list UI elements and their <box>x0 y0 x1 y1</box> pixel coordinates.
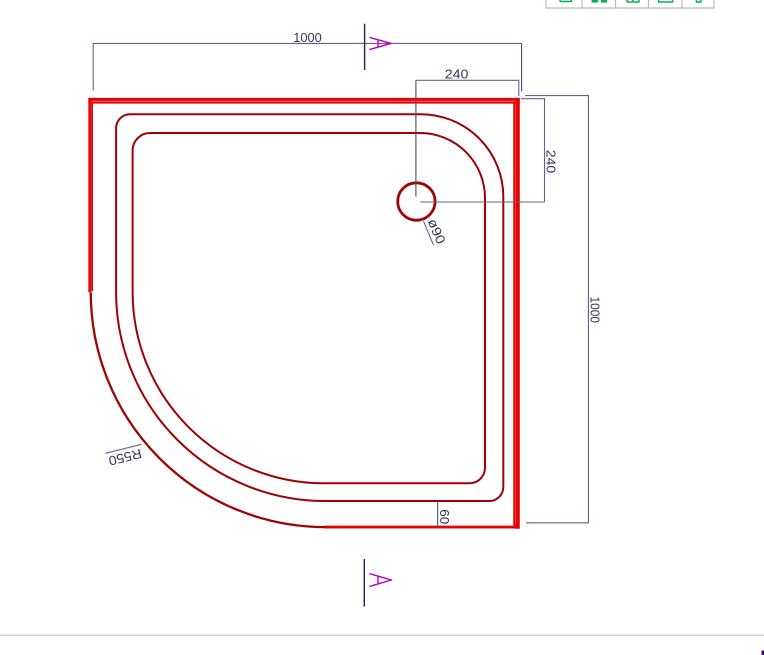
svg-text:240: 240 <box>543 150 558 174</box>
svg-text:60: 60 <box>437 509 452 524</box>
svg-text:1000: 1000 <box>293 30 322 45</box>
svg-text:1000: 1000 <box>587 297 602 324</box>
svg-text:240: 240 <box>445 67 469 82</box>
svg-text:R550: R550 <box>107 446 143 469</box>
